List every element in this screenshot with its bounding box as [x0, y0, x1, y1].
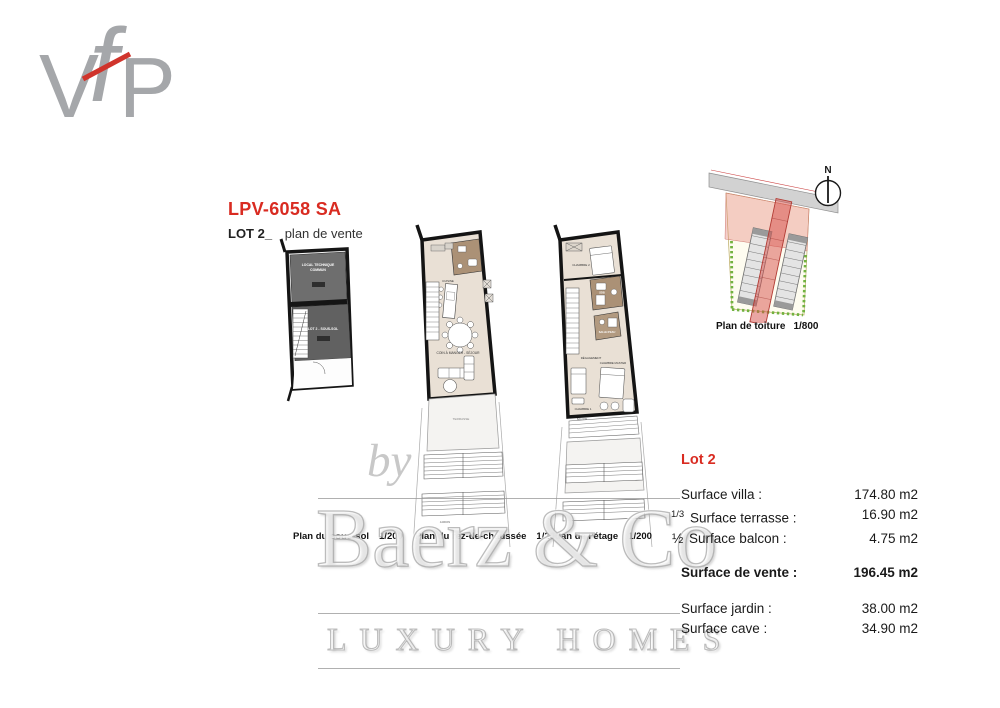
- label-chambre-2: CHAMBRE 2: [572, 263, 590, 267]
- etage-master-bed: [599, 367, 625, 399]
- etage-bed-1: [571, 368, 586, 404]
- floor-plan-rdc: CUISINE COIN À MANGER - SÉJOUR TERRASSE …: [398, 222, 528, 547]
- roof-site-plan: N: [705, 163, 845, 323]
- caption-roof-scale: 1/800: [793, 321, 818, 332]
- surface-row-balcon: ½ Surface balcon : 4.75 m2: [681, 529, 918, 549]
- watermark-rule-middle: [318, 613, 680, 614]
- caption-etage: Plan de l'étage1/200: [552, 531, 652, 542]
- caption-rdc-label: Plan du rez-de-chaussée: [415, 531, 526, 542]
- room-tag: [312, 282, 325, 287]
- north-label: N: [824, 165, 831, 176]
- caption-sous-sol-scale: 1/200: [379, 531, 403, 542]
- surface-terrasse-prefix: 1/3: [671, 505, 684, 525]
- floor-plan-sous-sol: LOCAL TECHNIQUE COMMUN LOT 2 - SOUS-SOL: [255, 238, 370, 403]
- caption-sous-sol: Plan du sous-sol1/200: [293, 531, 403, 542]
- surface-row-villa: Surface villa : 174.80 m2: [681, 485, 918, 505]
- rdc-staircase: [426, 282, 439, 340]
- label-sdb: SDB: [599, 291, 605, 295]
- basement-staircase: [293, 309, 308, 358]
- lot-info-title: Lot 2: [681, 452, 918, 468]
- rdc-dining-table: [442, 317, 478, 353]
- surface-balcon-label: ½ Surface balcon :: [681, 529, 787, 549]
- label-jardin: JARDIN: [440, 520, 450, 524]
- caption-sous-sol-label: Plan du sous-sol: [293, 531, 369, 542]
- surface-cave-value: 34.90 m2: [862, 619, 918, 639]
- label-salle-deau: SALLE D'EAU: [599, 331, 616, 334]
- etage-bed-2: [589, 246, 614, 275]
- surface-vente-value: 196.45 m2: [853, 563, 918, 583]
- caption-etage-label: Plan de l'étage: [552, 531, 618, 542]
- label-chambre-1: CHAMBRE 1: [575, 407, 592, 411]
- surface-balcon-value: 4.75 m2: [869, 529, 918, 549]
- watermark-rule-bottom: [318, 668, 680, 669]
- surface-terrasse-value: 16.90 m2: [862, 505, 918, 529]
- surface-jardin-label: Surface jardin :: [681, 599, 772, 619]
- basement-entry: [293, 358, 352, 389]
- label-terrasse: TERRASSE: [453, 417, 470, 421]
- label-local-technique: LOCAL TECHNIQUE: [302, 263, 335, 267]
- caption-rdc: Plan du rez-de-chaussée1/200: [415, 531, 560, 542]
- label-local-technique-2: COMMUN: [310, 268, 326, 272]
- watermark-tagline: LUXURY HOMES: [327, 621, 733, 658]
- rdc-garden-steps: [422, 452, 505, 516]
- label-sejour: COIN À MANGER - SÉJOUR: [436, 350, 480, 355]
- surface-terrasse-label: 1/3 Surface terrasse :: [681, 505, 797, 529]
- rdc-wet-room: [451, 239, 482, 275]
- surface-row-vente: Surface de vente : 196.45 m2: [681, 563, 918, 583]
- vfp-logo: V f P: [33, 22, 173, 130]
- title-block: LPV-6058 SA LOT 2_ plan de vente: [228, 199, 363, 241]
- caption-etage-scale: 1/200: [628, 531, 652, 542]
- lot-info-panel: Lot 2 Surface villa : 174.80 m2 1/3 Surf…: [681, 452, 918, 639]
- surface-villa-label: Surface villa :: [681, 485, 762, 505]
- surface-vente-label: Surface de vente :: [681, 563, 797, 583]
- caption-roof-label: Plan de toiture: [716, 321, 785, 332]
- technical-room: [290, 252, 347, 303]
- room-tag: [317, 336, 330, 341]
- surface-balcon-prefix: ½: [672, 529, 683, 549]
- north-arrow: N: [816, 165, 841, 206]
- surface-jardin-value: 38.00 m2: [862, 599, 918, 619]
- label-balcon: BALCON: [577, 418, 587, 421]
- floor-plan-etage: CHAMBRE 2 SDB SALLE D'EAU DÉGAGEMENT CHA…: [538, 222, 668, 547]
- label-degagement: DÉGAGEMENT: [581, 355, 602, 360]
- plan-de-vente-page: V f P LPV-6058 SA LOT 2_ plan de vente L: [0, 0, 1000, 708]
- surface-row-cave: Surface cave : 34.90 m2: [681, 619, 918, 639]
- caption-roof: Plan de toiture1/800: [716, 321, 818, 332]
- label-lot2-sous-sol: LOT 2 - SOUS-SOL: [308, 327, 338, 331]
- surface-row-jardin: Surface jardin : 38.00 m2: [681, 599, 918, 619]
- rdc-terrace: [427, 394, 499, 451]
- surface-row-terrasse: 1/3 Surface terrasse : 16.90 m2: [681, 505, 918, 529]
- surface-villa-value: 174.80 m2: [854, 485, 918, 505]
- etage-sdb: [590, 276, 623, 310]
- surface-cave-label: Surface cave :: [681, 619, 767, 639]
- page-title: LPV-6058 SA: [228, 199, 363, 220]
- label-cuisine: CUISINE: [442, 279, 454, 283]
- etage-staircase: [566, 288, 579, 354]
- label-chambre-master: CHAMBRE MASTER: [600, 361, 626, 365]
